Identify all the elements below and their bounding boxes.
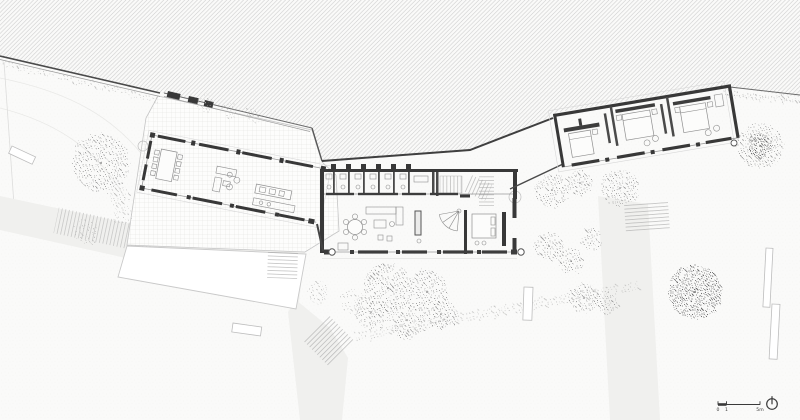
column: [518, 249, 524, 255]
tree-canopy: [668, 265, 722, 319]
shrub: [108, 185, 130, 207]
shrub: [222, 102, 238, 118]
column: [329, 249, 335, 255]
scale-label-5m: 5m: [756, 407, 764, 413]
tree-canopy: [354, 295, 388, 329]
tree-canopy: [558, 248, 584, 274]
corridor-wall: [326, 193, 458, 195]
shrub: [307, 281, 329, 303]
tree-canopy: [567, 170, 593, 196]
tree-canopy: [601, 169, 639, 207]
tree-canopy: [72, 134, 130, 192]
scale-label-1: 1: [725, 407, 728, 413]
shrub: [112, 205, 132, 225]
floor-plan-svg: 0 1 5m: [0, 0, 800, 420]
tree-canopy: [737, 123, 783, 169]
bench: [523, 287, 533, 320]
tree-canopy: [388, 301, 426, 339]
shrub: [197, 95, 215, 113]
tree-canopy: [596, 292, 618, 314]
column: [731, 140, 737, 146]
steps-house-northeast: [479, 176, 494, 206]
tree-canopy: [569, 283, 599, 313]
tree-canopy: [426, 299, 456, 329]
scale-label-0: 0: [717, 407, 720, 413]
tree-canopy: [535, 232, 563, 260]
site-plan-page: 0 1 5m: [0, 0, 800, 420]
shrub: [75, 220, 99, 244]
steps-pool-end: [267, 251, 298, 279]
tree-canopy: [535, 173, 569, 207]
tree-canopy: [580, 228, 602, 250]
shrub: [245, 108, 259, 122]
steps-east-garden: [624, 201, 670, 232]
